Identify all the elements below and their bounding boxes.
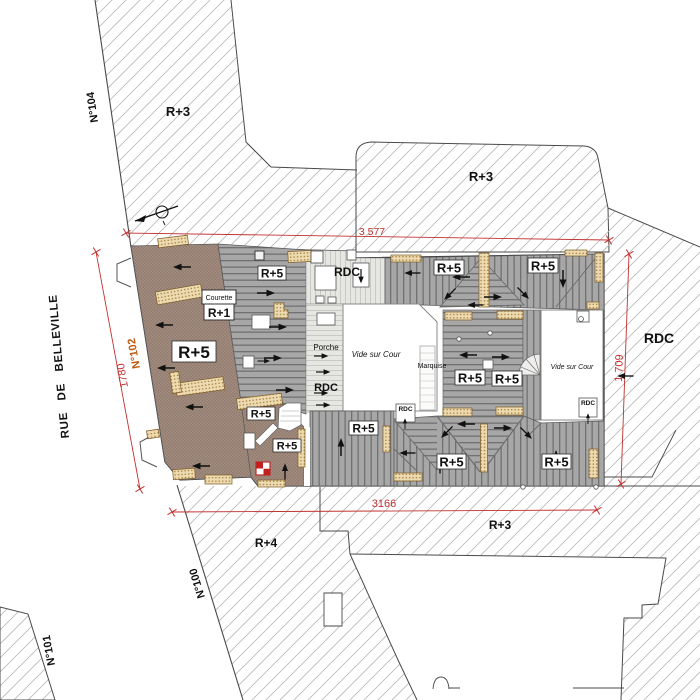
svg-text:R+5: R+5 — [352, 422, 375, 436]
svg-text:R+5: R+5 — [495, 372, 519, 387]
svg-text:R+4: R+4 — [255, 536, 278, 550]
svg-text:RDC: RDC — [398, 406, 412, 413]
svg-text:3166: 3166 — [372, 498, 396, 510]
svg-text:RDC: RDC — [644, 330, 674, 346]
svg-text:RDC: RDC — [334, 265, 360, 279]
svg-text:1 709: 1 709 — [613, 354, 626, 382]
svg-text:R+5: R+5 — [277, 441, 298, 453]
svg-text:R+3: R+3 — [166, 104, 190, 119]
svg-text:3 577: 3 577 — [359, 226, 385, 238]
svg-text:Porche: Porche — [313, 343, 339, 352]
svg-text:Marquise: Marquise — [418, 363, 447, 370]
svg-text:R+3: R+3 — [469, 169, 493, 184]
svg-text:R+1: R+1 — [208, 306, 231, 320]
svg-text:Vide sur Cour: Vide sur Cour — [352, 350, 401, 359]
svg-text:R+5: R+5 — [437, 261, 461, 276]
svg-text:R+5: R+5 — [251, 409, 272, 421]
svg-text:R+5: R+5 — [458, 371, 482, 386]
svg-text:RDC: RDC — [314, 382, 338, 394]
svg-text:R+5: R+5 — [178, 343, 210, 362]
svg-text:R+5: R+5 — [531, 259, 555, 274]
svg-text:Vide sur Cour: Vide sur Cour — [551, 364, 594, 371]
svg-text:R+3: R+3 — [489, 518, 512, 532]
svg-text:RDC: RDC — [581, 400, 595, 407]
svg-text:R+5: R+5 — [544, 455, 568, 470]
svg-text:R+5: R+5 — [261, 267, 284, 281]
svg-text:R+5: R+5 — [439, 455, 463, 470]
svg-text:Courette: Courette — [206, 295, 233, 302]
